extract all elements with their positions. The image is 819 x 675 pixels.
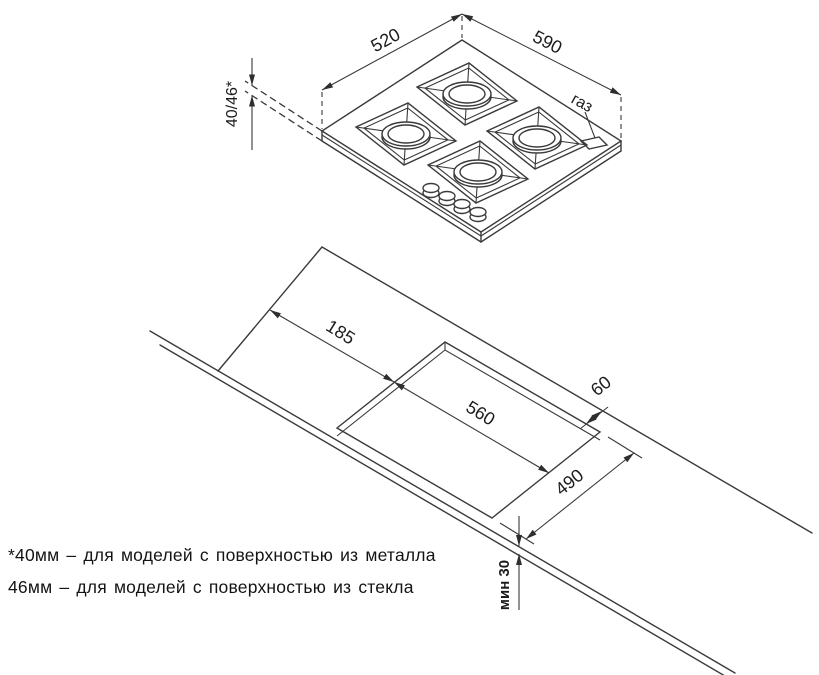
dimension-min-30: мин 30 [496, 516, 522, 610]
footnote-glass-height: 46мм – для моделей с поверхностью из сте… [8, 577, 414, 598]
burner-right [487, 107, 587, 169]
dimension-560-label: 560 [462, 397, 498, 430]
countertop-front-edge [150, 331, 735, 673]
dimension-560: 560 [394, 382, 549, 473]
cooktop-rim-left [322, 135, 481, 236]
dimension-60-label: 60 [587, 372, 615, 400]
gas-label: газ [568, 91, 595, 116]
installation-diagram: 520 590 40/46* газ [0, 0, 819, 675]
installation-diagram-page: 520 590 40/46* газ [0, 0, 819, 675]
burner-back [417, 63, 517, 125]
burner-left [356, 103, 456, 165]
footnote-metal-height: *40мм – для моделей с поверхностью из ме… [8, 545, 436, 566]
hidden-edge-bottom [245, 91, 322, 141]
hidden-edge-top [245, 81, 322, 131]
dimension-min30-label: мин 30 [496, 560, 513, 610]
countertop-cutout-view: 185 560 60 490 [150, 247, 812, 675]
control-knob [439, 192, 455, 206]
dimension-490: 490 [500, 437, 642, 544]
cooktop-bottom-edge-right [481, 151, 621, 242]
dimension-185: 185 [270, 310, 394, 382]
dimension-height-label: 40/46* [224, 81, 241, 127]
dimension-590-label: 590 [530, 26, 566, 57]
dimension-height: 40/46* [224, 58, 255, 150]
cutout-inner-ledge [337, 350, 600, 440]
countertop-left-edge [218, 247, 322, 371]
dimension-520: 520 [322, 14, 462, 129]
dimension-520-label: 520 [368, 24, 404, 56]
control-knob [423, 184, 439, 198]
control-knob [454, 200, 470, 214]
gas-annotation: газ [568, 91, 595, 138]
cooktop-isometric-view: 520 590 40/46* газ [224, 14, 621, 242]
control-knob [470, 208, 486, 222]
